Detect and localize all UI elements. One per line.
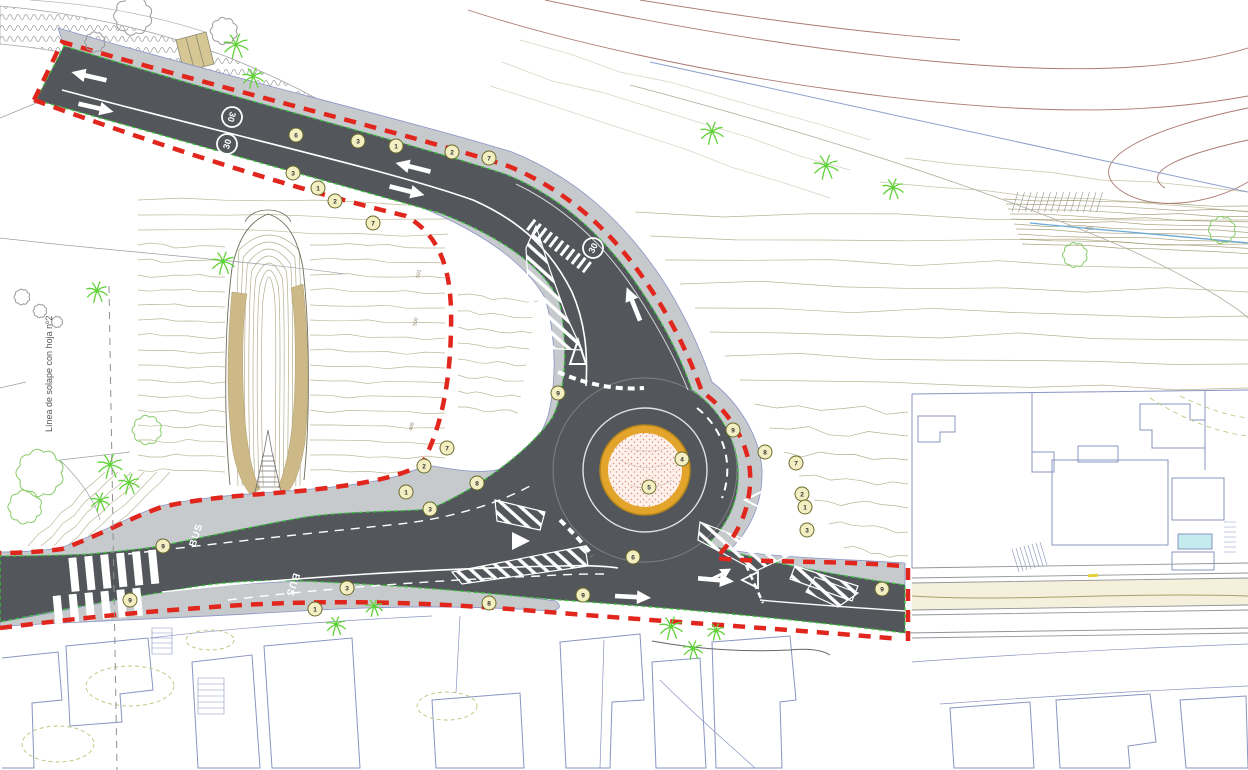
contour-line [138, 395, 225, 398]
contour-line [829, 522, 908, 533]
terrace-tick [1064, 192, 1070, 212]
contour-line [1006, 204, 1248, 211]
brown-contour-loops [468, 0, 1248, 203]
contour-line [310, 395, 445, 398]
contour-line [138, 319, 225, 323]
palm-fronds [87, 282, 108, 303]
leafy-tree-icon [8, 490, 42, 524]
building-outline [1172, 552, 1214, 570]
building-outline [1180, 696, 1248, 768]
callout-number: 2 [422, 463, 426, 470]
parcel-line [60, 452, 130, 520]
terrace-ticks [1012, 192, 1103, 212]
parcel-line [150, 616, 460, 693]
tan-strip [228, 292, 260, 495]
callout-number: 3 [428, 506, 432, 513]
tan-strip [278, 284, 308, 493]
contour-line [458, 343, 529, 349]
roundabout-plan-svg: 501500499502 [0, 0, 1248, 770]
palm-tree-icon [119, 474, 140, 495]
palm-tree-icon [212, 252, 235, 275]
palm-tree-icon [683, 641, 702, 660]
callout-1: 1 [798, 500, 812, 514]
parcel-line [600, 640, 755, 768]
palm-trunk [715, 630, 717, 632]
callout-number: 9 [161, 543, 165, 550]
palm-trunk [892, 187, 894, 189]
palm-tree-icon [701, 122, 724, 145]
parcel-right [912, 390, 1248, 572]
terrace-tick [1071, 192, 1077, 212]
building-outline [66, 638, 153, 726]
road-wash [912, 578, 1248, 610]
contour-line [769, 427, 908, 437]
building-outline [1052, 460, 1168, 545]
contour-hairpin [257, 270, 280, 486]
contour-brown-line [1158, 140, 1248, 188]
island-landscaped-fill [608, 433, 682, 507]
callout-number: 5 [647, 484, 651, 491]
callout-4: 4 [675, 452, 689, 466]
parcel-line [912, 644, 1248, 704]
contour-line [310, 440, 445, 444]
callout-number: 3 [291, 170, 295, 177]
building-outline [192, 655, 260, 768]
track-line [652, 641, 830, 655]
callout-number: 3 [805, 527, 809, 534]
building-outline [1140, 404, 1205, 448]
callout-3: 3 [423, 502, 437, 516]
callout-9: 9 [123, 593, 137, 607]
palm-trunk [711, 131, 713, 133]
dashed-bed [86, 666, 174, 706]
contour-brown-line [1109, 108, 1248, 203]
palm-tree-icon [87, 282, 108, 303]
contour-line [784, 452, 908, 460]
contour-line [138, 229, 448, 236]
contour-line [665, 260, 1248, 268]
palm-fronds [98, 454, 123, 479]
callout-1: 1 [311, 181, 325, 195]
palm-trunk [96, 290, 98, 292]
contour-brown-line [640, 0, 960, 40]
callout-number: 1 [394, 143, 398, 150]
landscape-dashed-beds [22, 630, 477, 762]
callout-number: 7 [445, 445, 449, 452]
contour-line [458, 359, 527, 366]
callout-number: 8 [763, 449, 767, 456]
contour-line [310, 320, 445, 323]
gray-tree-icon [210, 17, 237, 44]
callout-8: 8 [470, 476, 484, 490]
palm-tree-icon [326, 617, 345, 636]
dashed-bed [186, 630, 234, 650]
contour-line [310, 244, 445, 248]
contour-line [310, 288, 445, 293]
contour-line [310, 349, 445, 354]
stair-hatch [198, 678, 224, 714]
callout-5: 5 [642, 480, 656, 494]
dashed-bed [417, 692, 477, 720]
stair-hatch [152, 628, 172, 654]
palm-trunk [222, 261, 224, 263]
contour-line [138, 410, 225, 413]
contour-line [138, 289, 225, 292]
contour-line [310, 305, 445, 308]
palm-trunk [670, 626, 672, 628]
contour-line [310, 425, 445, 428]
contour-line [138, 333, 225, 338]
landscape-dashed [1150, 396, 1248, 436]
contour-line [138, 469, 225, 472]
building-outline [1056, 694, 1156, 768]
callout-number: 1 [316, 185, 320, 192]
contour-line [636, 212, 1248, 220]
callout-8: 8 [758, 445, 772, 459]
palm-trunk [373, 606, 375, 608]
palm-fronds [814, 155, 839, 180]
terrain-boundary-line [630, 85, 1248, 318]
palm-trunk [335, 624, 337, 626]
palm-trunk [235, 44, 237, 46]
palm-tree-icon [814, 155, 839, 180]
terrace-tick [1038, 192, 1044, 212]
contour-line [695, 308, 1248, 318]
callout-number: 2 [800, 491, 804, 498]
contour-line [138, 365, 225, 368]
contour-line [502, 62, 850, 170]
callout-number: 8 [475, 480, 479, 487]
callout-number: 1 [404, 489, 408, 496]
contour-line [520, 40, 870, 140]
contour-line [458, 294, 538, 302]
contour-line [905, 158, 1248, 192]
contour-line [138, 275, 225, 278]
callout-2: 2 [795, 487, 809, 501]
terrace-tick [1084, 192, 1090, 212]
leafy-tree-icon [132, 415, 161, 444]
palm-tree-icon [98, 454, 123, 479]
building-outline [1032, 452, 1054, 472]
contour-line [755, 404, 908, 414]
contour-line [650, 236, 1248, 245]
callout-9: 9 [576, 588, 590, 602]
buildings-bottom-middle [560, 634, 830, 768]
callout-9: 9 [726, 423, 740, 437]
gray-tree-icon [14, 289, 30, 305]
callout-3: 3 [351, 134, 365, 148]
palm-trunk [128, 482, 130, 484]
building-outline [1172, 478, 1224, 520]
callout-1: 1 [389, 139, 403, 153]
contour-elevation-label: 500 [412, 317, 419, 326]
contour-line [814, 500, 908, 508]
callout-number: 9 [581, 592, 585, 599]
palm-trunk [692, 648, 694, 650]
building-outline [712, 636, 796, 768]
leafy-tree-icon [1062, 243, 1087, 268]
callout-2: 2 [417, 459, 431, 473]
terrace-tick [1032, 192, 1038, 212]
contour-line [310, 380, 445, 384]
callout-9: 9 [875, 582, 889, 596]
terrace-tick [1058, 192, 1064, 212]
swimming-pool [1178, 534, 1212, 549]
contour-line [1008, 209, 1248, 217]
palm-fronds [119, 474, 140, 495]
callout-number: 2 [333, 198, 337, 205]
stream-blue-line [650, 62, 1248, 192]
callout-9: 9 [156, 539, 170, 553]
stair-hatch [1224, 522, 1236, 552]
callout-3: 3 [340, 581, 354, 595]
callout-7: 7 [482, 151, 496, 165]
callout-7: 7 [366, 216, 380, 230]
callout-number: 8 [487, 600, 491, 607]
palm-trunk [99, 500, 101, 502]
callout-2: 2 [445, 145, 459, 159]
contour-line [138, 304, 225, 307]
contour-line [740, 380, 1248, 390]
building-outline [652, 658, 706, 768]
contour-line [138, 380, 225, 383]
contour-elevation-label: 501 [415, 269, 422, 278]
contour-elevation-label: 499 [408, 422, 416, 432]
callout-9: 9 [551, 386, 565, 400]
contour-line [458, 407, 518, 413]
terrace-tick [1090, 192, 1096, 212]
contour-elevation-label: 502 [1085, 225, 1094, 232]
terrace-tick [1097, 192, 1103, 212]
callout-number: 1 [313, 606, 317, 613]
contour-line [458, 391, 521, 397]
stair-hatch [1012, 542, 1047, 572]
callout-number: 1 [803, 504, 807, 511]
callout-2: 2 [328, 194, 342, 208]
building-outline [264, 638, 360, 768]
palm-fronds [212, 252, 235, 275]
callout-1: 1 [308, 602, 322, 616]
callout-6: 6 [289, 128, 303, 142]
contour-line [1018, 234, 1248, 243]
palm-trunk [825, 165, 827, 167]
palm-tree-icon [883, 179, 904, 200]
contour-line [310, 274, 445, 278]
yellow-mark [1088, 574, 1098, 578]
contour-brown-line [468, 10, 1248, 110]
contour-line [138, 350, 225, 353]
callout-number: 9 [880, 586, 884, 593]
callout-number: 7 [371, 220, 375, 227]
building-outline [432, 693, 524, 768]
palm-trunk [252, 76, 254, 78]
contour-line [310, 410, 445, 414]
callout-number: 3 [356, 138, 360, 145]
overlap-note-text: Línea de solape con hoja nº2 [44, 316, 54, 432]
contour-line [880, 182, 1248, 212]
contour-line [725, 353, 1248, 364]
callout-number: 2 [450, 149, 454, 156]
callout-number: 3 [345, 585, 349, 592]
callout-number: 7 [487, 155, 491, 162]
contour-line [680, 281, 1248, 292]
callout-number: 6 [631, 554, 635, 561]
contour-line [138, 454, 225, 457]
palm-trunk [109, 464, 111, 466]
callout-3: 3 [286, 166, 300, 180]
contour-line [710, 332, 1248, 340]
callout-number: 9 [731, 427, 735, 434]
contour-line [310, 334, 445, 339]
contour-line [458, 327, 532, 333]
contour-line [458, 311, 535, 318]
contour-line [310, 258, 445, 263]
terrace-tick [1077, 192, 1083, 212]
callout-number: 6 [294, 132, 298, 139]
contour-line [799, 475, 908, 485]
callout-1: 1 [399, 485, 413, 499]
sheet-notes: Línea de solape con hoja nº2 [44, 286, 117, 770]
contour-hairpin [245, 249, 293, 486]
parcel-line [0, 238, 345, 274]
slope-tower-apex [245, 210, 291, 222]
callout-number: 9 [128, 597, 132, 604]
plan-drawing-canvas: 501500499502 [0, 0, 1248, 770]
callout-7: 7 [440, 441, 454, 455]
parcel-line [0, 382, 26, 388]
callout-6: 6 [626, 550, 640, 564]
callout-8: 8 [482, 596, 496, 610]
callout-7: 7 [789, 456, 803, 470]
contour-line [138, 439, 225, 442]
contour-line [138, 243, 225, 248]
callout-3: 3 [800, 523, 814, 537]
contour-line [138, 425, 225, 428]
building-outline [2, 652, 62, 768]
building-outline [950, 702, 1034, 768]
contour-line [310, 365, 445, 369]
callout-number: 9 [556, 390, 560, 397]
building-outline [918, 416, 955, 442]
contour-line [458, 375, 524, 381]
callout-number: 7 [794, 460, 798, 467]
east-existing-road [905, 563, 1248, 638]
terrace-tick [1051, 192, 1057, 212]
contour-line [844, 546, 908, 557]
callout-number: 4 [680, 456, 684, 463]
buildings-bottom-right [912, 644, 1248, 768]
terrace-tick [1045, 192, 1051, 212]
